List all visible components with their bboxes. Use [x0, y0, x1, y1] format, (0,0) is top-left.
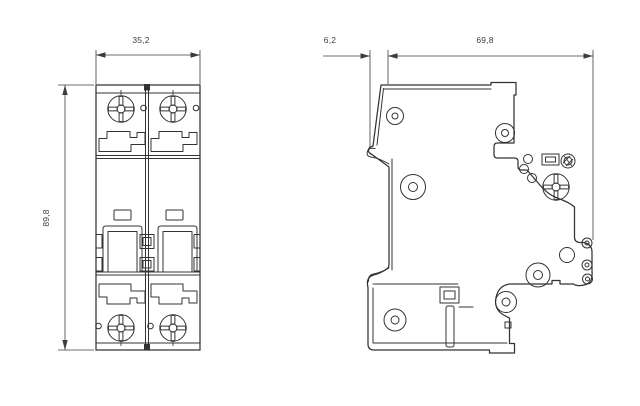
edge-rivets — [582, 238, 593, 284]
boss-icon — [496, 124, 515, 143]
front-body — [96, 84, 200, 350]
arrowhead-icon — [62, 340, 67, 350]
terminal-screw-icon — [108, 96, 134, 122]
front-height-label: 89,8 — [41, 209, 51, 226]
tab-opening — [440, 287, 459, 303]
front-width-dimension: 35,2 — [96, 35, 200, 84]
side-body — [367, 83, 592, 354]
clip-upper-nose — [367, 148, 389, 164]
scallop-icon — [520, 165, 529, 174]
terminal-plate — [99, 132, 145, 152]
scallop-icon — [528, 174, 537, 183]
front-view: 35,2 89,8 — [41, 35, 200, 350]
terminal-screw-icon — [160, 315, 186, 341]
terminal-plate — [151, 284, 197, 304]
scallop-icon — [524, 155, 533, 164]
side-body-outline — [367, 83, 592, 354]
drawing-svg: 35,2 89,8 — [0, 0, 640, 406]
slot — [446, 306, 454, 347]
terminal-plate — [99, 284, 145, 304]
boss-icon — [496, 292, 517, 313]
clip-lower-nose — [368, 268, 389, 282]
front-height-dimension: 89,8 — [41, 85, 94, 350]
arrowhead-icon — [388, 53, 398, 58]
arrowhead-icon — [96, 52, 106, 57]
side-offset-label: 6,2 — [324, 35, 336, 45]
side-terminal-screw-icon — [543, 174, 569, 200]
boss-circles — [384, 108, 575, 332]
clip-front-inner — [377, 89, 384, 146]
arrowhead-icon — [584, 53, 594, 58]
boss-icon — [384, 309, 406, 331]
side-view: 6,2 69,8 — [323, 35, 593, 353]
knurled-rivet-icon — [561, 154, 575, 168]
terminal-screw-icon — [160, 96, 186, 122]
terminal-opening — [542, 154, 559, 165]
rivet-icon — [582, 260, 592, 270]
divider-mark — [144, 84, 150, 91]
boss-icon — [401, 175, 426, 200]
label-window — [114, 210, 131, 220]
label-window — [166, 210, 183, 220]
technical-drawing: 35,2 89,8 — [0, 0, 640, 406]
boss-icon — [560, 248, 575, 263]
terminal-screw-icon — [108, 315, 134, 341]
boss-icon — [387, 108, 404, 125]
arrowhead-icon — [62, 85, 67, 95]
rivet-icon — [193, 105, 199, 111]
divider-mark — [144, 344, 150, 350]
arrowhead-icon — [191, 52, 201, 57]
terminal-plate — [151, 132, 197, 152]
side-offset-dimension: 6,2 — [323, 35, 370, 148]
busbar-slot — [440, 287, 473, 347]
arrowhead-icon — [361, 53, 371, 58]
front-width-label: 35,2 — [132, 35, 149, 45]
side-depth-dimension: 69,8 — [388, 35, 593, 240]
side-depth-label: 69,8 — [476, 35, 493, 45]
